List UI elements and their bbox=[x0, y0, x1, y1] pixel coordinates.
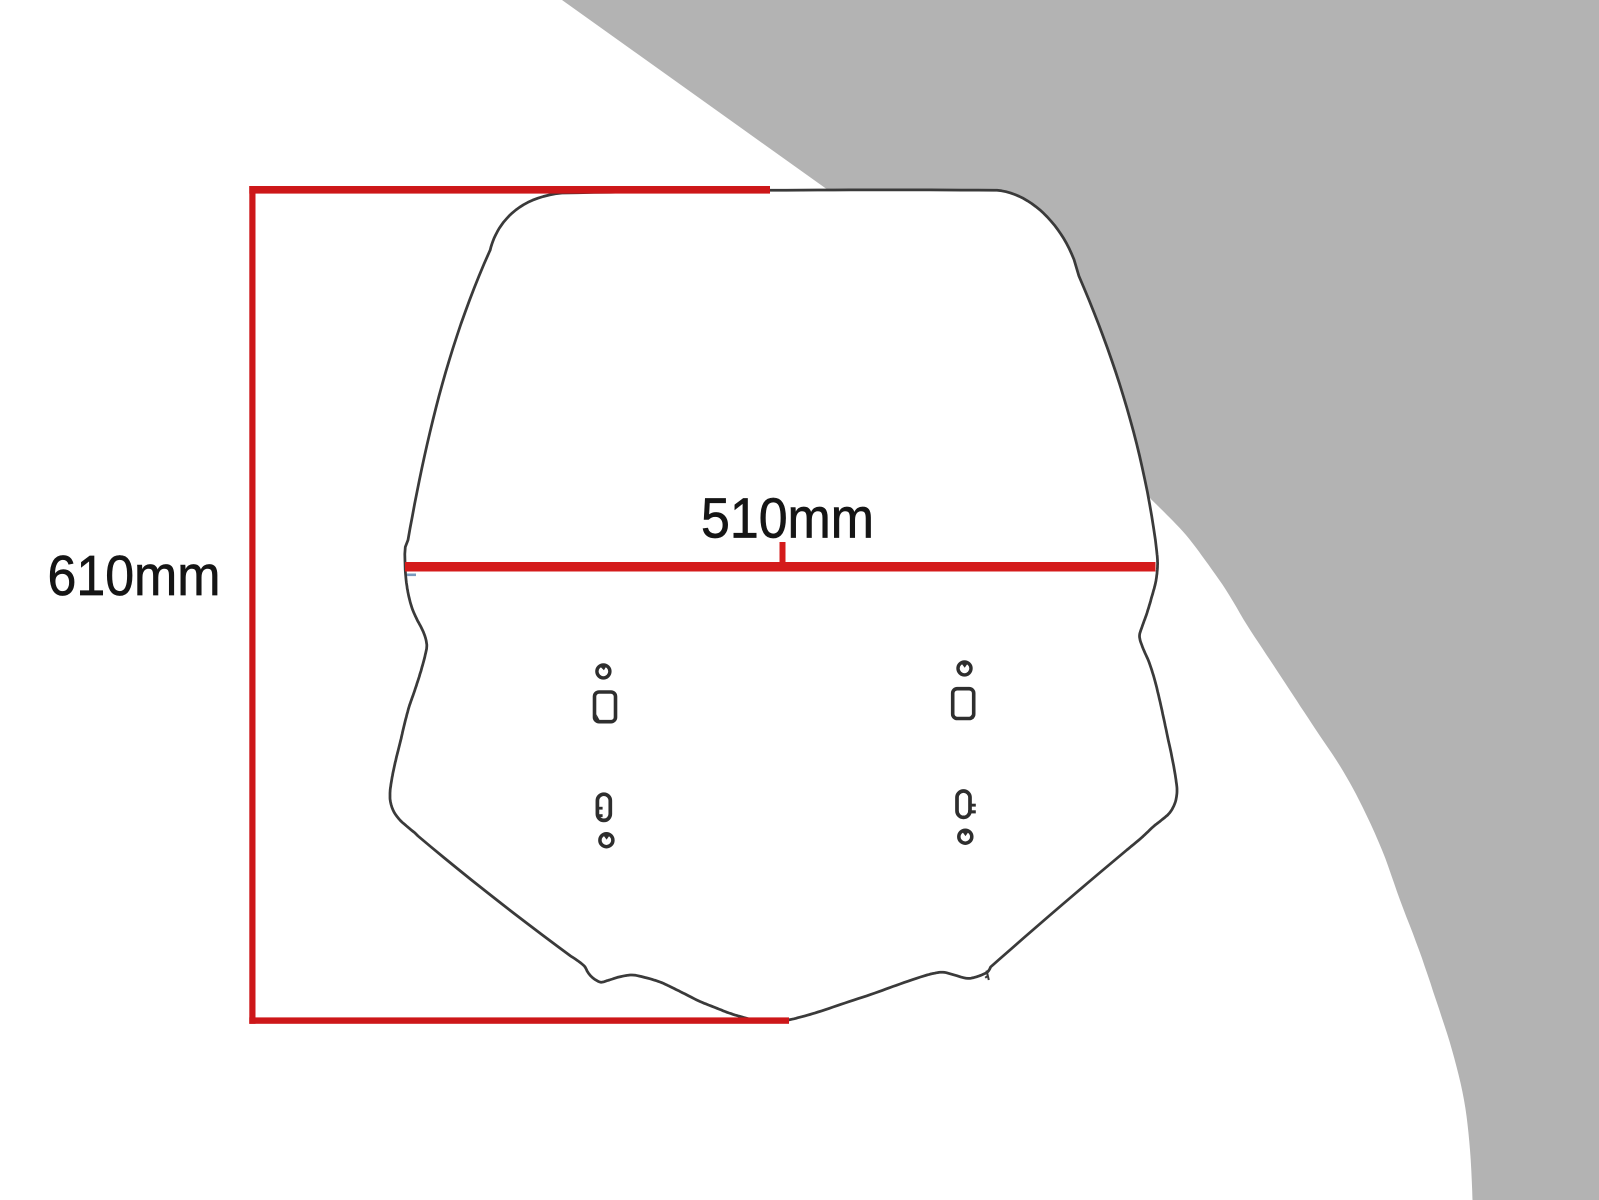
svg-text:610mm: 610mm bbox=[48, 544, 221, 608]
svg-text:510mm: 510mm bbox=[701, 487, 874, 551]
